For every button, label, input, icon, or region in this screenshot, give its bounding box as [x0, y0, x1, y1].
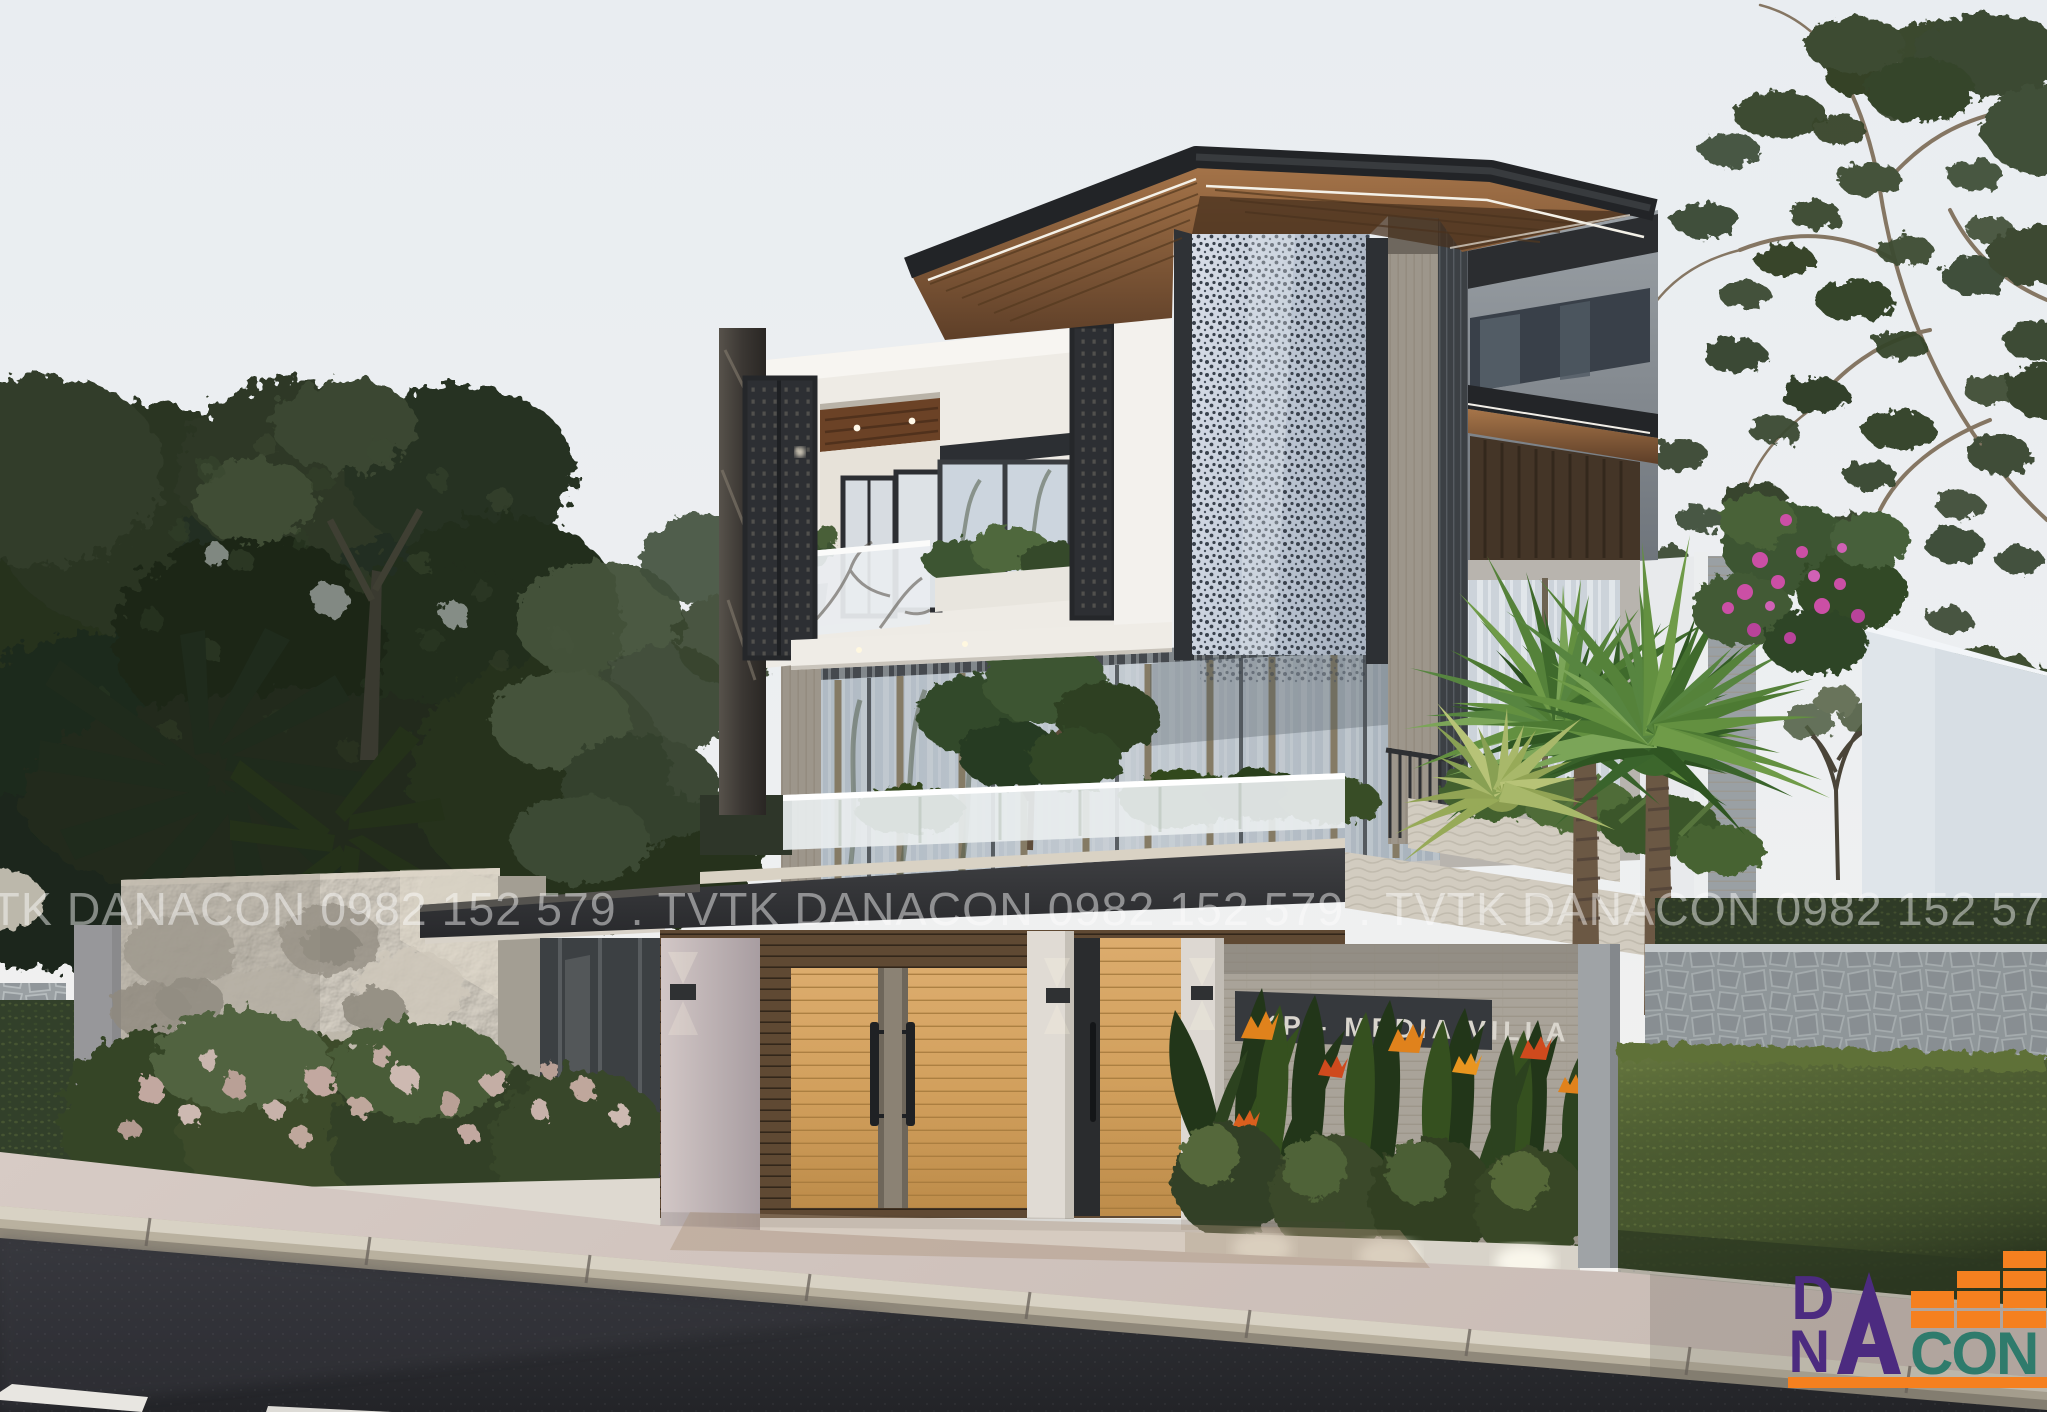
svg-text:N: N: [1788, 1319, 1830, 1385]
svg-text:CON: CON: [1910, 1320, 2037, 1387]
svg-text:TVTK DANACON 0982 152 579 . TV: TVTK DANACON 0982 152 579 . TVTK DANACON…: [0, 883, 2047, 935]
